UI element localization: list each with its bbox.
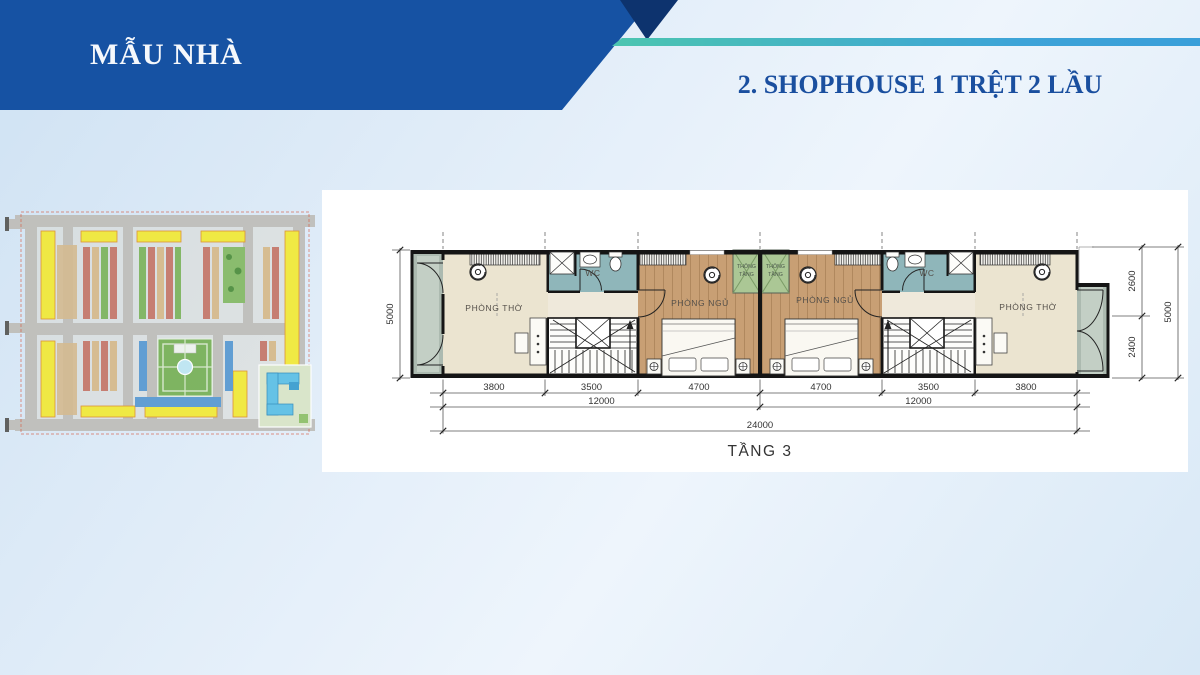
section-title: 2. SHOPHOUSE 1 TRỆT 2 LẦU [640,70,1200,100]
map-lake [178,360,193,375]
site-map-thumbnail [5,195,325,448]
dim-label: 3800 [483,382,504,393]
void-label: TẦNG [768,271,783,278]
floor-plan-graphic: PHÒNG THỜ WC PHÒNG NGỦ PHÒNG NGỦ WC PHÒN… [322,190,1188,472]
dim-label: 3500 [581,382,602,393]
void-label: TẦNG [739,271,754,278]
dim-label: 3500 [918,382,939,393]
room-label-worship-left: PHÒNG THỜ [465,303,523,313]
map-park-top [223,247,245,303]
dim-label: 4700 [810,382,831,393]
room-label-wc-right: WC [919,268,934,278]
dim-label: 3800 [1015,382,1036,393]
page-title: MẪU NHÀ [90,38,243,72]
map-central-park [158,339,212,396]
room-label-bedroom-left: PHÒNG NGỦ [671,297,729,308]
dim-label: 12000 [905,396,931,407]
dim-label: 2400 [1127,336,1138,357]
room-label-wc-left: WC [585,268,600,278]
floor-plan-panel: PHÒNG THỜ WC PHÒNG NGỦ PHÒNG NGỦ WC PHÒN… [322,190,1188,472]
room-label-bedroom-right: PHÒNG NGỦ [796,294,854,305]
void-label: THÔNG [737,263,756,270]
dim-label: 5000 [1163,301,1174,322]
dim-label: 2600 [1127,270,1138,291]
void-label: THÔNG [766,263,785,270]
toilet-left [610,257,621,271]
floor-caption: TẦNG 3 [728,443,793,460]
dim-label: 4700 [688,382,709,393]
bed-left [647,319,750,376]
dim-label: 5000 [385,303,396,324]
map-clubhouse [259,365,311,427]
dim-label: 12000 [588,396,614,407]
bed-right [770,319,873,376]
dim-label: 24000 [747,420,773,431]
slide: MẪU NHÀ 2. SHOPHOUSE 1 TRỆT 2 LẦU [0,0,1200,675]
site-map-graphic [5,195,325,448]
room-label-worship-right: PHÒNG THỜ [999,302,1057,312]
toilet-right [887,257,898,271]
header-accent-line [612,38,1200,46]
